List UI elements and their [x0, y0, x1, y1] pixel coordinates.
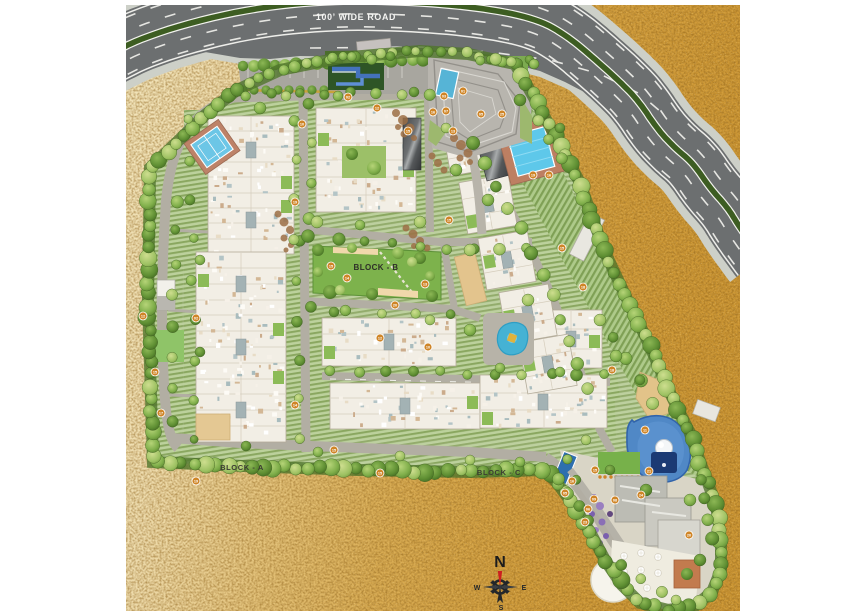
- svg-text:15: 15: [406, 130, 410, 134]
- svg-text:12: 12: [375, 107, 379, 111]
- svg-text:02: 02: [346, 96, 350, 100]
- svg-text:19: 19: [194, 480, 198, 484]
- svg-text:15: 15: [447, 219, 451, 223]
- svg-text:19: 19: [531, 174, 535, 178]
- svg-text:13: 13: [423, 283, 427, 287]
- svg-text:20: 20: [393, 304, 397, 308]
- svg-text:05: 05: [563, 492, 567, 496]
- svg-text:01: 01: [461, 90, 465, 94]
- svg-text:20: 20: [687, 534, 691, 538]
- svg-text:100’ WIDE ROAD: 100’ WIDE ROAD: [316, 12, 396, 22]
- svg-text:10: 10: [300, 123, 304, 127]
- svg-text:12: 12: [141, 315, 145, 319]
- svg-text:15: 15: [332, 449, 336, 453]
- svg-text:09: 09: [592, 498, 596, 502]
- svg-text:18: 18: [610, 369, 614, 373]
- svg-text:02: 02: [194, 317, 198, 321]
- svg-text:08: 08: [613, 499, 617, 503]
- svg-text:15: 15: [329, 265, 333, 269]
- svg-text:16: 16: [570, 480, 574, 484]
- svg-text:BLOCK - A: BLOCK - A: [220, 463, 264, 472]
- svg-text:06: 06: [586, 508, 590, 512]
- svg-text:W: W: [474, 585, 481, 592]
- svg-text:BLOCK - C: BLOCK - C: [477, 468, 521, 477]
- svg-text:13: 13: [451, 130, 455, 134]
- svg-text:23: 23: [583, 521, 587, 525]
- svg-text:S: S: [499, 605, 504, 611]
- svg-text:N: N: [494, 554, 506, 571]
- svg-text:11: 11: [643, 429, 647, 433]
- svg-text:10: 10: [426, 346, 430, 350]
- svg-text:19: 19: [293, 201, 297, 205]
- svg-text:BLOCK - B: BLOCK - B: [354, 263, 399, 272]
- svg-text:17: 17: [159, 412, 163, 416]
- svg-text:18: 18: [581, 286, 585, 290]
- svg-text:E: E: [522, 585, 527, 592]
- svg-text:15: 15: [378, 472, 382, 476]
- svg-text:15: 15: [560, 247, 564, 251]
- svg-text:07: 07: [444, 110, 448, 114]
- svg-text:21: 21: [647, 470, 651, 474]
- svg-text:16: 16: [431, 111, 435, 115]
- svg-text:03: 03: [442, 95, 446, 99]
- svg-text:25: 25: [500, 113, 504, 117]
- svg-text:15: 15: [153, 371, 157, 375]
- svg-text:05: 05: [479, 113, 483, 117]
- svg-text:12: 12: [378, 337, 382, 341]
- svg-text:16: 16: [547, 174, 551, 178]
- svg-text:15: 15: [593, 469, 597, 473]
